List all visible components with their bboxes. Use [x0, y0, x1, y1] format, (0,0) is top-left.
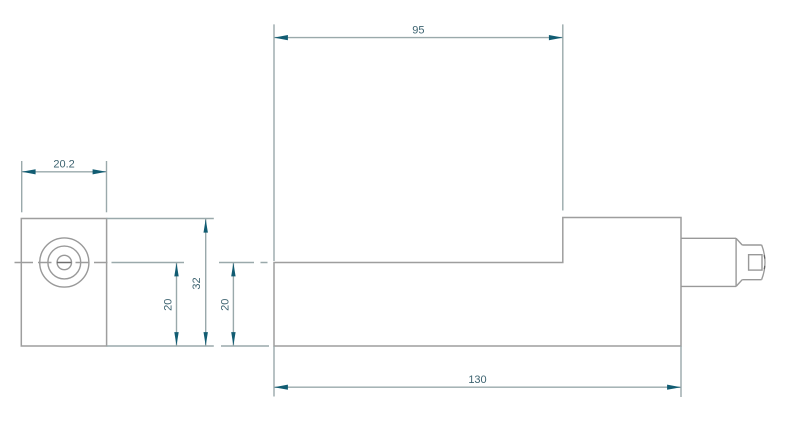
svg-text:20: 20 — [162, 299, 174, 311]
svg-text:95: 95 — [412, 25, 424, 37]
svg-text:20: 20 — [219, 299, 231, 311]
svg-text:20.2: 20.2 — [53, 159, 74, 171]
svg-text:32: 32 — [191, 277, 203, 289]
svg-text:130: 130 — [468, 374, 486, 386]
